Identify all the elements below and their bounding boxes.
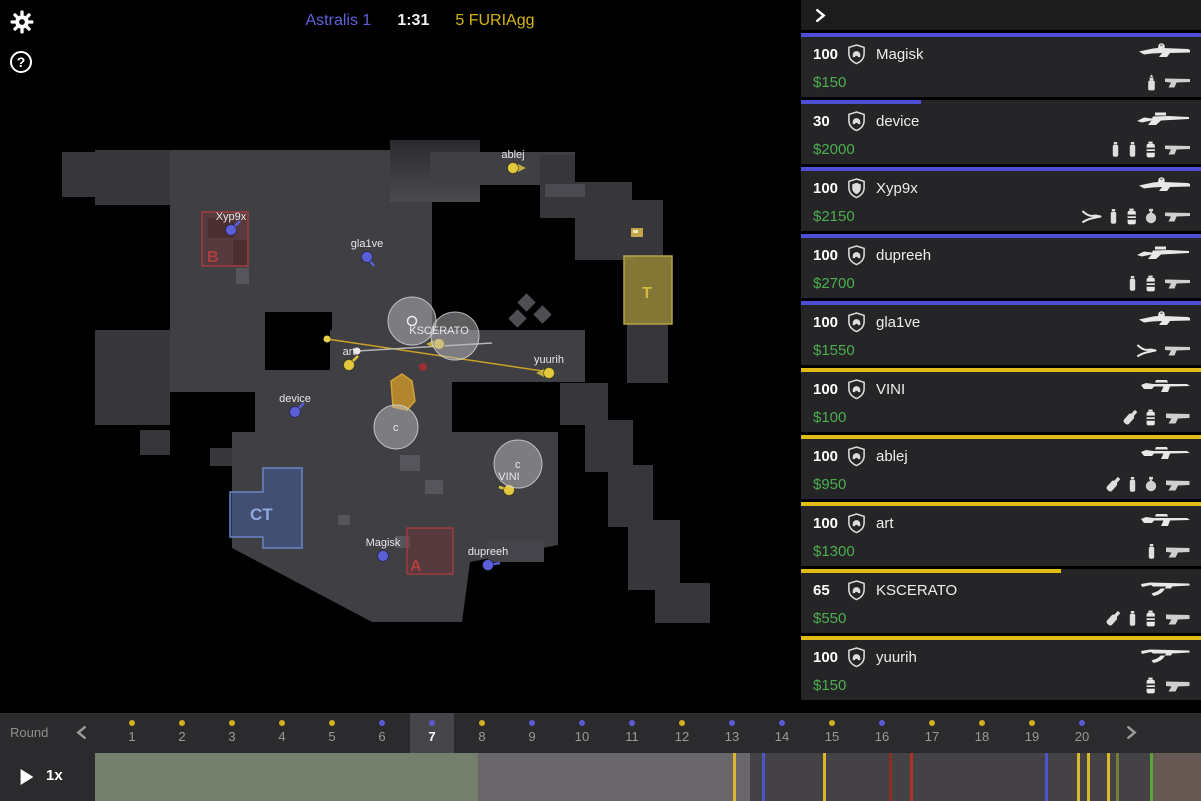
player-name: device xyxy=(876,113,919,130)
awp-weapon-icon xyxy=(1135,243,1191,262)
rounds-prev-button[interactable] xyxy=(76,725,87,740)
round-19-button[interactable]: 19 xyxy=(1010,713,1054,753)
round-selector-bar: Round 1234567891011121314151617181920 xyxy=(0,713,1201,753)
map-structure xyxy=(608,465,653,527)
round-number: 19 xyxy=(1010,729,1054,744)
play-button[interactable] xyxy=(20,769,34,785)
map-structure xyxy=(655,583,710,623)
smoke-glyph: c xyxy=(515,459,521,471)
timeline-segment xyxy=(1152,753,1201,801)
round-12-button[interactable]: 12 xyxy=(660,713,704,753)
galil-weapon-icon xyxy=(1139,444,1191,463)
timeline-segment xyxy=(478,753,750,801)
timeline-event-marker xyxy=(1116,753,1119,801)
timeline-event-marker xyxy=(1077,753,1080,801)
timeline-event-marker xyxy=(1150,753,1153,801)
round-number: 2 xyxy=(160,729,204,744)
armor-helmet-icon xyxy=(847,513,866,534)
molotov-icon xyxy=(1123,409,1138,426)
player-money: $1300 xyxy=(813,543,855,560)
player-row[interactable]: 100Xyp9x$2150 xyxy=(801,167,1201,231)
glock-icon xyxy=(1164,477,1191,492)
armor-helmet-icon xyxy=(847,245,866,266)
map-structure xyxy=(338,515,350,525)
flash-icon xyxy=(1109,208,1119,225)
player-name: Magisk xyxy=(876,46,924,63)
map-crate xyxy=(517,293,535,311)
molotov-icon xyxy=(1106,476,1121,493)
round-winner-dot xyxy=(879,720,885,726)
round-1-button[interactable]: 1 xyxy=(110,713,154,753)
round-14-button[interactable]: 14 xyxy=(760,713,804,753)
player-health: 100 xyxy=(813,247,847,264)
player-health: 100 xyxy=(813,180,847,197)
he-icon xyxy=(1145,476,1157,492)
round-number: 16 xyxy=(860,729,904,744)
player-equipment xyxy=(1081,208,1191,225)
player-money: $100 xyxy=(813,409,846,426)
glock-icon xyxy=(1164,544,1191,559)
round-2-button[interactable]: 2 xyxy=(160,713,204,753)
flash-icon xyxy=(1128,141,1138,158)
aug-weapon-icon xyxy=(1137,176,1191,195)
armor-helmet-icon xyxy=(847,580,866,601)
ak47-weapon-icon xyxy=(1139,645,1191,664)
player-row[interactable]: 100Magisk$150 xyxy=(801,33,1201,97)
smoke-glyph: c xyxy=(393,422,399,434)
defuse-icon xyxy=(1081,209,1102,224)
round-number: 11 xyxy=(610,729,654,744)
armor-helmet-icon xyxy=(847,446,866,467)
smoke-icon xyxy=(1145,610,1157,627)
round-15-button[interactable]: 15 xyxy=(810,713,854,753)
round-6-button[interactable]: 6 xyxy=(360,713,404,753)
round-winner-dot xyxy=(929,720,935,726)
round-number: 14 xyxy=(760,729,804,744)
round-11-button[interactable]: 11 xyxy=(610,713,654,753)
player-sidebar: 100Magisk$15030device$2000100Xyp9x$21501… xyxy=(801,0,1201,713)
grenade-projectile xyxy=(324,336,331,343)
player-name: ablej xyxy=(876,448,908,465)
player-row[interactable]: 30device$2000 xyxy=(801,100,1201,164)
usp-icon xyxy=(1164,276,1191,290)
incendiary-icon xyxy=(1146,74,1157,91)
player-name: yuurih xyxy=(876,649,917,666)
map-structure xyxy=(575,200,635,260)
map-structure xyxy=(210,448,232,466)
rounds-next-button[interactable] xyxy=(1126,725,1137,740)
map-player-label: KSCERATO xyxy=(409,325,469,337)
playback-speed[interactable]: 1x xyxy=(46,767,63,784)
map-player-label: ablej xyxy=(501,149,524,161)
round-number: 7 xyxy=(410,729,454,744)
round-number: 18 xyxy=(960,729,1004,744)
playback-bar: 1x xyxy=(0,753,1201,801)
aug-weapon-icon xyxy=(1137,310,1191,329)
timeline-segment xyxy=(95,753,478,801)
demo-viewer: BACTTccablejXyp9xgla1vedeviceartKSCERATO… xyxy=(0,0,1201,801)
map-structure xyxy=(95,150,170,205)
smoke-icon xyxy=(1145,677,1157,694)
map-structure xyxy=(585,420,633,472)
player-name: KSCERATO xyxy=(876,582,957,599)
player-money: $950 xyxy=(813,476,846,493)
usp-icon xyxy=(1164,75,1191,89)
round-4-button[interactable]: 4 xyxy=(260,713,304,753)
scoreboard: Astralis 1 1:31 5 FURIAgg xyxy=(20,12,820,30)
galil-weapon-icon xyxy=(1139,511,1191,530)
sidebar-collapse-button[interactable] xyxy=(801,0,1201,30)
map-player-label: gla1ve xyxy=(351,238,383,250)
map-red-marker xyxy=(419,363,427,371)
armor-helmet-icon xyxy=(847,44,866,65)
usp-icon xyxy=(1164,142,1191,156)
round-winner-dot xyxy=(179,720,185,726)
map-zone-label: CT xyxy=(250,505,273,524)
player-row[interactable]: 65KSCERATO$550 xyxy=(801,569,1201,633)
map-player-Magisk xyxy=(378,551,389,562)
round-winner-dot xyxy=(529,720,535,726)
glock-icon xyxy=(1164,611,1191,626)
chevron-right-icon xyxy=(815,8,826,23)
player-name: art xyxy=(876,515,894,532)
round-number: 15 xyxy=(810,729,854,744)
team1-name-score: Astralis 1 xyxy=(306,12,372,30)
c4-bomb-icon-detail xyxy=(633,230,638,233)
glock-icon xyxy=(1164,678,1191,693)
round-number: 4 xyxy=(260,729,304,744)
map-structure xyxy=(628,520,680,590)
timeline-event-marker xyxy=(1107,753,1110,801)
round-5-button[interactable]: 5 xyxy=(310,713,354,753)
player-health: 100 xyxy=(813,381,847,398)
round-number: 3 xyxy=(210,729,254,744)
map-player-label: dupreeh xyxy=(468,546,508,558)
smoke-icon xyxy=(1126,208,1138,225)
player-health: 65 xyxy=(813,582,847,599)
player-name: VINI xyxy=(876,381,905,398)
round-winner-dot xyxy=(679,720,685,726)
round-8-button[interactable]: 8 xyxy=(460,713,504,753)
glock-icon xyxy=(1164,410,1191,425)
round-number: 1 xyxy=(110,729,154,744)
round-winner-dot xyxy=(629,720,635,726)
player-money: $550 xyxy=(813,610,846,627)
help-question-icon[interactable]: ? xyxy=(10,51,32,73)
player-row[interactable]: 100art$1300 xyxy=(801,502,1201,566)
map-structure xyxy=(95,330,170,425)
map-area: BACTTccablejXyp9xgla1vedeviceartKSCERATO… xyxy=(0,0,800,713)
round-winner-dot xyxy=(579,720,585,726)
round-18-button[interactable]: 18 xyxy=(960,713,1004,753)
player-health: 100 xyxy=(813,515,847,532)
round-number: 6 xyxy=(360,729,404,744)
player-equipment xyxy=(1123,409,1191,426)
player-money: $2000 xyxy=(813,141,855,158)
map-structure xyxy=(545,184,585,197)
player-equipment xyxy=(1147,543,1191,560)
player-money: $2150 xyxy=(813,208,855,225)
map-structure xyxy=(560,383,608,425)
map-structure xyxy=(236,268,249,284)
round-winner-dot xyxy=(979,720,985,726)
awp-weapon-icon xyxy=(1135,109,1191,128)
round-winner-dot xyxy=(329,720,335,726)
round-winner-dot xyxy=(729,720,735,726)
flash-icon xyxy=(1128,476,1138,493)
player-equipment xyxy=(1145,677,1191,694)
player-money: $150 xyxy=(813,677,846,694)
round-number: 8 xyxy=(460,729,504,744)
player-money: $2700 xyxy=(813,275,855,292)
player-equipment xyxy=(1111,141,1191,158)
round-winner-dot xyxy=(129,720,135,726)
player-health: 100 xyxy=(813,448,847,465)
round-winner-dot xyxy=(779,720,785,726)
aug-weapon-icon xyxy=(1137,42,1191,61)
map-structure xyxy=(255,370,335,440)
player-equipment xyxy=(1128,275,1191,292)
timeline-event-marker xyxy=(733,753,736,801)
map-structure xyxy=(170,312,265,392)
map-crate xyxy=(533,305,551,323)
map-player-label: yuurih xyxy=(534,354,564,366)
ak47-weapon-icon xyxy=(1139,578,1191,597)
round-label: Round xyxy=(10,725,48,740)
timeline-segment xyxy=(750,753,1152,801)
player-row[interactable]: 100ablej$950 xyxy=(801,435,1201,499)
round-number: 12 xyxy=(660,729,704,744)
round-number: 20 xyxy=(1060,729,1104,744)
map-structure xyxy=(140,430,170,455)
player-name: gla1ve xyxy=(876,314,920,331)
armor-helmet-icon xyxy=(847,111,866,132)
round-number: 13 xyxy=(710,729,754,744)
player-money: $150 xyxy=(813,74,846,91)
round-number: 9 xyxy=(510,729,554,744)
map-zone-label: B xyxy=(207,249,219,266)
map-zone-label: T xyxy=(642,285,652,302)
player-name: dupreeh xyxy=(876,247,931,264)
map-player-label: art xyxy=(343,346,356,358)
defuse-icon xyxy=(1136,343,1157,358)
flash-icon xyxy=(1128,275,1138,292)
timeline-event-marker xyxy=(910,753,913,801)
round-winner-dot xyxy=(229,720,235,726)
player-health: 100 xyxy=(813,314,847,331)
round-winner-dot xyxy=(379,720,385,726)
flash-icon xyxy=(1147,543,1157,560)
player-row[interactable]: 100dupreeh$2700 xyxy=(801,234,1201,298)
galil-weapon-icon xyxy=(1139,377,1191,396)
map-structure xyxy=(400,455,420,471)
smoke-icon xyxy=(1145,409,1157,426)
map-structure xyxy=(627,323,668,383)
player-health: 30 xyxy=(813,113,847,130)
round-winner-dot xyxy=(1029,720,1035,726)
he-icon xyxy=(1145,208,1157,224)
timeline-event-marker xyxy=(762,753,765,801)
round-winner-dot xyxy=(1079,720,1085,726)
player-row[interactable]: 100yuurih$150 xyxy=(801,636,1201,700)
round-winner-dot xyxy=(429,720,435,726)
timeline-event-marker xyxy=(1045,753,1048,801)
round-winner-dot xyxy=(479,720,485,726)
player-money: $1550 xyxy=(813,342,855,359)
map-zone-label: A xyxy=(410,558,422,575)
armor-kevlar-icon xyxy=(847,178,866,199)
player-equipment xyxy=(1106,610,1191,627)
player-equipment xyxy=(1136,343,1191,358)
smoke-cloud xyxy=(388,297,436,345)
team2-score-name: 5 FURIAgg xyxy=(455,12,534,30)
map-structure xyxy=(62,152,95,197)
map-player-label: VINI xyxy=(498,471,519,483)
map-crate xyxy=(508,309,526,327)
round-number: 10 xyxy=(560,729,604,744)
round-17-button[interactable]: 17 xyxy=(910,713,954,753)
round-clock: 1:31 xyxy=(397,12,429,30)
round-number: 5 xyxy=(310,729,354,744)
map-player-label: Xyp9x xyxy=(216,211,247,223)
map-player-label: Magisk xyxy=(366,537,401,549)
usp-icon xyxy=(1164,209,1191,223)
player-equipment xyxy=(1146,74,1191,91)
round-number: 17 xyxy=(910,729,954,744)
timeline-event-marker xyxy=(823,753,826,801)
flash-icon xyxy=(1128,610,1138,627)
player-row[interactable]: 100gla1ve$1550 xyxy=(801,301,1201,365)
round-20-button[interactable]: 20 xyxy=(1060,713,1104,753)
map-2d: BACTTccablejXyp9xgla1vedeviceartKSCERATO… xyxy=(0,0,800,713)
map-player-label: device xyxy=(279,393,311,405)
player-health: 100 xyxy=(813,649,847,666)
round-7-button[interactable]: 7 xyxy=(410,713,454,753)
armor-helmet-icon xyxy=(847,379,866,400)
flash-icon xyxy=(1111,141,1121,158)
player-name: Xyp9x xyxy=(876,180,918,197)
smoke-icon xyxy=(1145,141,1157,158)
round-13-button[interactable]: 13 xyxy=(710,713,754,753)
armor-helmet-icon xyxy=(847,647,866,668)
molotov-icon xyxy=(1106,610,1121,627)
armor-helmet-icon xyxy=(847,312,866,333)
player-row[interactable]: 100VINI$100 xyxy=(801,368,1201,432)
round-winner-dot xyxy=(829,720,835,726)
timeline-event-marker xyxy=(889,753,892,801)
round-16-button[interactable]: 16 xyxy=(860,713,904,753)
map-structure xyxy=(425,480,443,494)
smoke-icon xyxy=(1145,275,1157,292)
round-9-button[interactable]: 9 xyxy=(510,713,554,753)
player-equipment xyxy=(1106,476,1191,493)
usp-icon xyxy=(1164,343,1191,357)
round-10-button[interactable]: 10 xyxy=(560,713,604,753)
player-health: 100 xyxy=(813,46,847,63)
round-3-button[interactable]: 3 xyxy=(210,713,254,753)
round-winner-dot xyxy=(279,720,285,726)
timeline-event-marker xyxy=(1087,753,1090,801)
